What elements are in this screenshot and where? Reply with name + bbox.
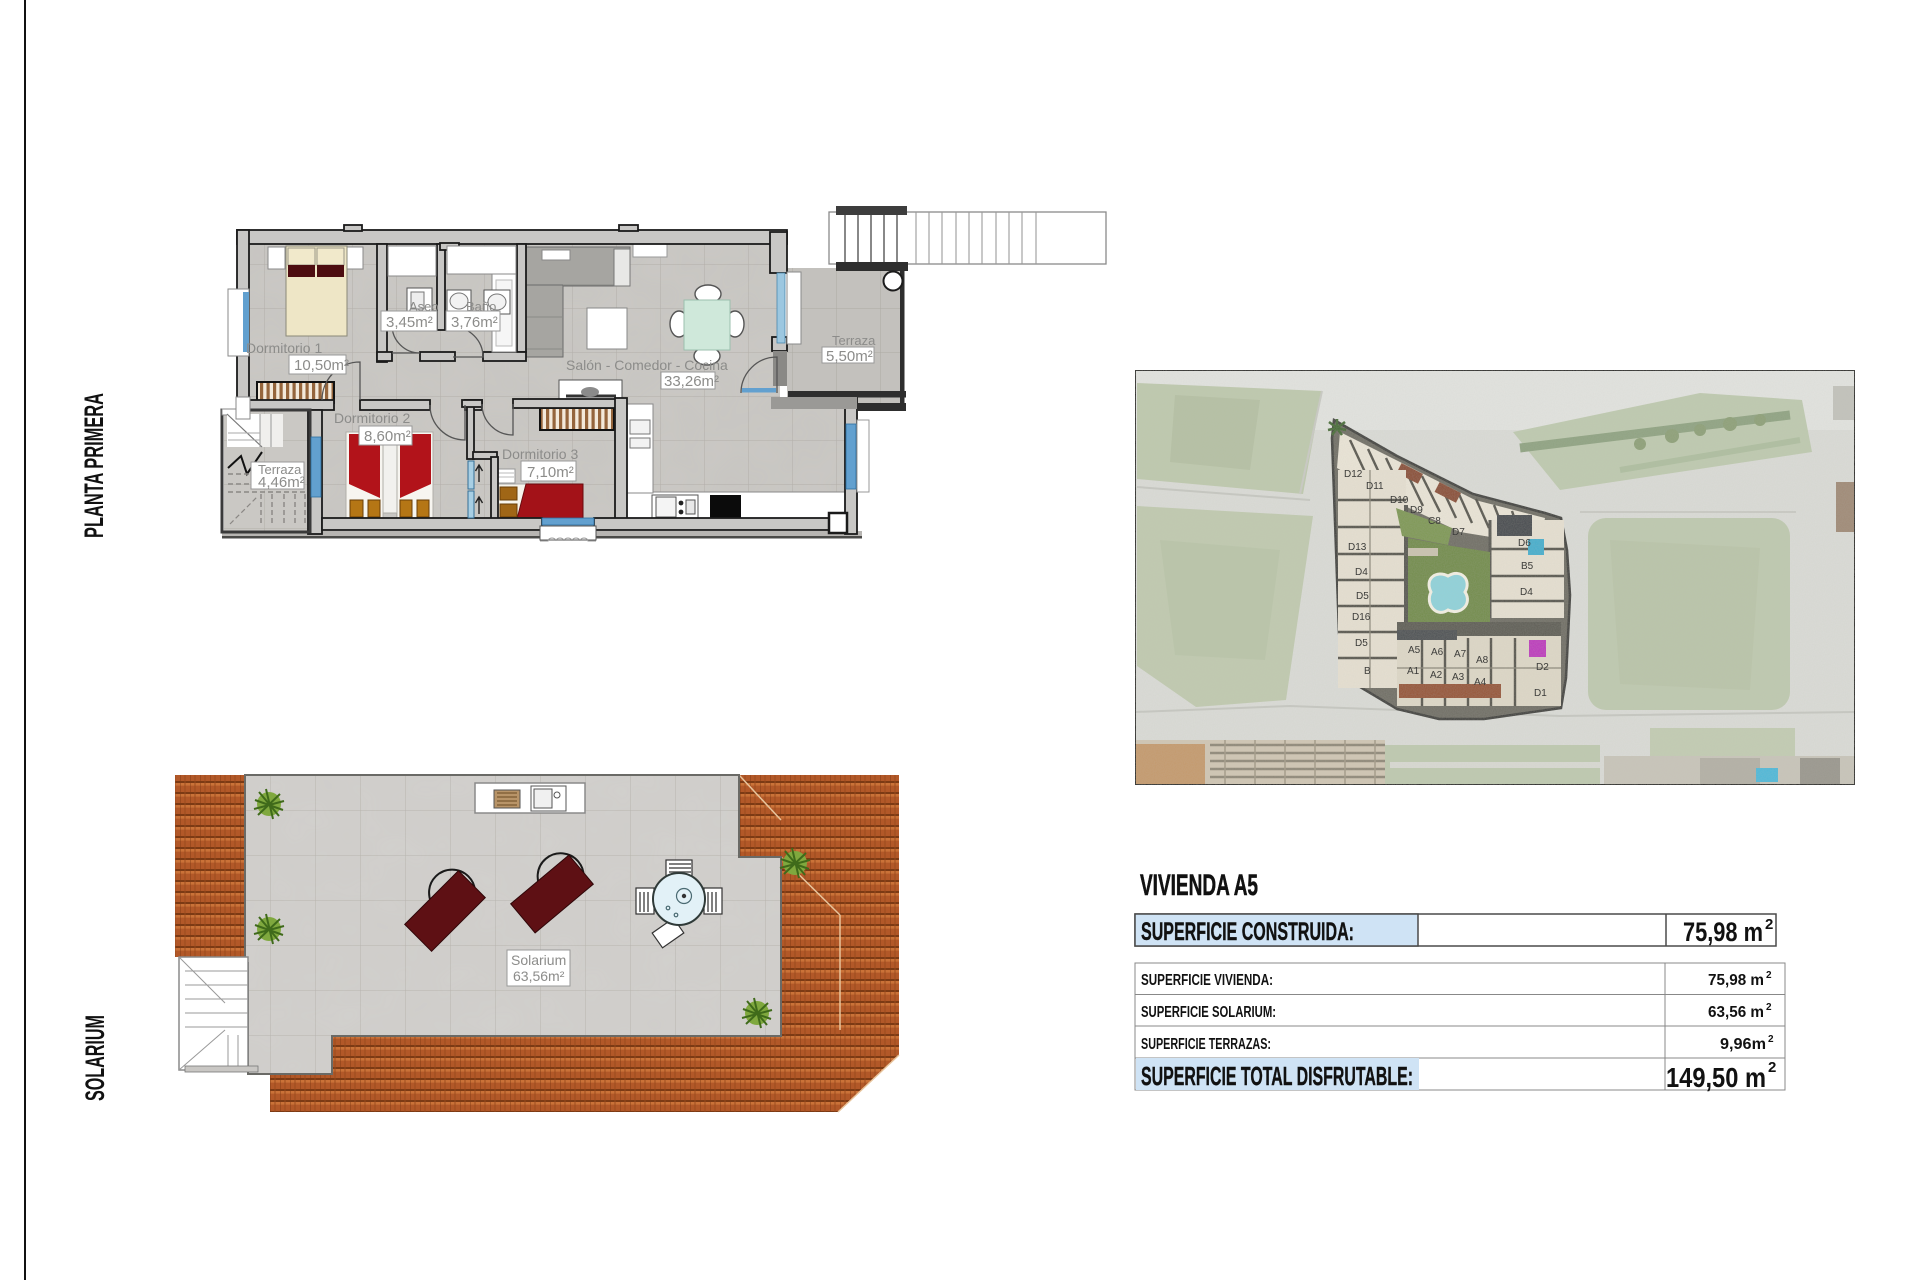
svg-text:2: 2 <box>1766 970 1772 981</box>
svg-text:D1: D1 <box>1534 688 1547 699</box>
svg-text:2: 2 <box>1765 916 1773 933</box>
svg-text:B: B <box>1364 666 1371 677</box>
svg-text:D11: D11 <box>1366 481 1384 492</box>
svg-text:Dormitorio 1: Dormitorio 1 <box>246 340 322 356</box>
svg-text:D12: D12 <box>1344 469 1363 480</box>
svg-text:A5: A5 <box>1408 645 1421 656</box>
svg-text:Solarium: Solarium <box>511 952 566 968</box>
svg-text:3,76m²: 3,76m² <box>451 314 498 331</box>
svg-text:A7: A7 <box>1454 649 1467 660</box>
svg-text:A3: A3 <box>1452 672 1465 683</box>
svg-text:SUPERFICIE CONSTRUIDA:: SUPERFICIE CONSTRUIDA: <box>1141 918 1354 946</box>
svg-text:D2: D2 <box>1536 662 1549 673</box>
svg-text:Dormitorio 3: Dormitorio 3 <box>502 446 578 462</box>
svg-text:D4: D4 <box>1520 587 1533 598</box>
svg-text:C8: C8 <box>1428 516 1441 527</box>
svg-text:3,45m²: 3,45m² <box>386 314 433 331</box>
svg-text:149,50 m: 149,50 m <box>1666 1062 1766 1093</box>
svg-text:SUPERFICIE TERRAZAS:: SUPERFICIE TERRAZAS: <box>1141 1036 1271 1053</box>
svg-text:B5: B5 <box>1521 561 1534 572</box>
svg-text:A6: A6 <box>1431 647 1444 658</box>
svg-text:SUPERFICIE TOTAL DISFRUTABLE:: SUPERFICIE TOTAL DISFRUTABLE: <box>1141 1061 1413 1091</box>
svg-text:D6: D6 <box>1518 538 1531 549</box>
svg-text:A8: A8 <box>1476 655 1489 666</box>
svg-text:33,26m²: 33,26m² <box>664 373 719 390</box>
svg-text:D5: D5 <box>1356 591 1369 602</box>
svg-text:D7: D7 <box>1452 527 1465 538</box>
svg-text:D16: D16 <box>1352 612 1371 623</box>
svg-text:D4: D4 <box>1355 567 1368 578</box>
svg-text:A1: A1 <box>1407 666 1420 677</box>
svg-text:2: 2 <box>1766 1002 1772 1013</box>
svg-text:63,56m²: 63,56m² <box>513 968 565 984</box>
svg-text:75,98 m: 75,98 m <box>1683 917 1763 947</box>
svg-text:PLANTA PRIMERA: PLANTA PRIMERA <box>79 393 109 538</box>
svg-text:2: 2 <box>1768 1059 1776 1076</box>
svg-text:9,96m: 9,96m <box>1720 1036 1766 1053</box>
svg-text:A4: A4 <box>1474 677 1487 688</box>
svg-text:D9: D9 <box>1410 505 1423 516</box>
svg-text:4,46m²: 4,46m² <box>258 474 305 491</box>
svg-text:7,10m²: 7,10m² <box>527 464 574 481</box>
svg-text:Terraza: Terraza <box>832 333 876 348</box>
svg-text:2: 2 <box>1768 1034 1774 1045</box>
svg-text:75,98 m: 75,98 m <box>1708 972 1764 989</box>
svg-text:SUPERFICIE SOLARIUM:: SUPERFICIE SOLARIUM: <box>1141 1004 1276 1021</box>
svg-text:10,50m²: 10,50m² <box>294 357 349 374</box>
svg-text:D13: D13 <box>1348 542 1367 553</box>
svg-text:SOLARIUM: SOLARIUM <box>80 1015 110 1101</box>
svg-text:VIVIENDA A5: VIVIENDA A5 <box>1140 869 1258 902</box>
svg-text:5,50m²: 5,50m² <box>826 348 873 365</box>
svg-text:D5: D5 <box>1355 638 1368 649</box>
svg-text:Dormitorio 2: Dormitorio 2 <box>334 410 410 426</box>
svg-text:D10: D10 <box>1390 495 1409 506</box>
svg-text:A2: A2 <box>1430 670 1443 681</box>
svg-text:8,60m²: 8,60m² <box>364 428 411 445</box>
svg-text:63,56 m: 63,56 m <box>1708 1004 1764 1021</box>
svg-text:SUPERFICIE VIVIENDA:: SUPERFICIE VIVIENDA: <box>1141 972 1273 989</box>
svg-text:Salón - Comedor - Cocina: Salón - Comedor - Cocina <box>566 357 728 373</box>
